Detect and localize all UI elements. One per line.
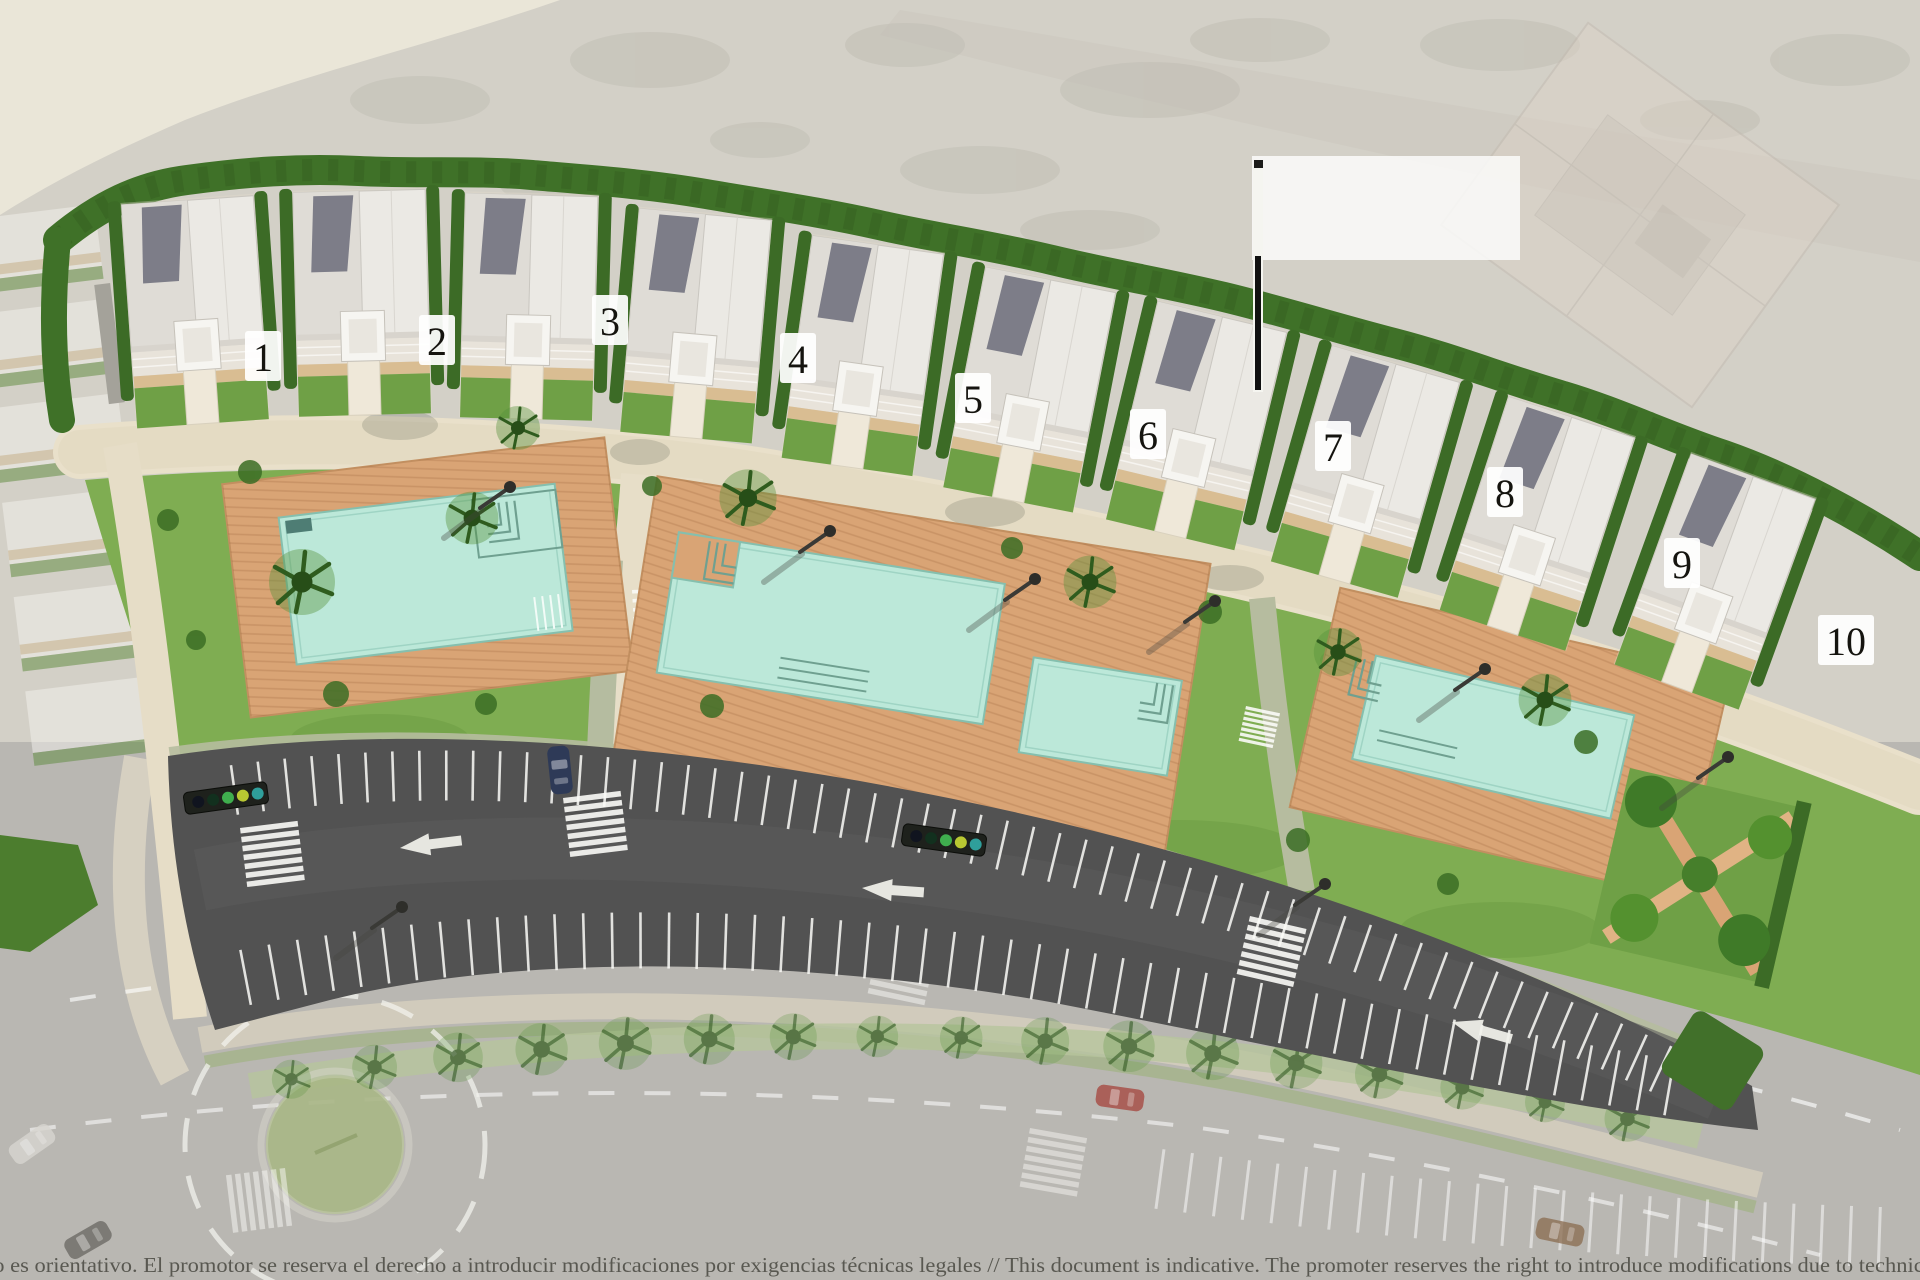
palm-tree-icon	[599, 1017, 652, 1070]
building-number-label: 4	[780, 333, 816, 383]
palm-tree-icon	[719, 469, 776, 526]
building-plot-2	[279, 185, 445, 417]
building-number-label: 10	[1818, 615, 1874, 665]
building-number-label: 7	[1315, 421, 1351, 471]
building-plot-3	[446, 189, 612, 421]
palm-tree-icon	[856, 1016, 898, 1058]
callout-box	[1252, 156, 1520, 260]
palm-tree-icon	[1064, 556, 1117, 609]
palm-tree-icon	[433, 1032, 483, 1082]
palm-tree-icon	[496, 406, 540, 450]
svg-text:7: 7	[1323, 425, 1343, 470]
palm-tree-icon	[515, 1023, 567, 1075]
palm-tree-icon	[269, 549, 335, 615]
palm-tree-icon	[272, 1060, 311, 1099]
building-number-label: 2	[419, 315, 455, 365]
svg-text:4: 4	[788, 337, 808, 382]
building-plot-4	[606, 203, 785, 444]
palm-tree-icon	[1314, 628, 1362, 676]
building-number-label: 5	[955, 373, 991, 423]
svg-text:8: 8	[1495, 471, 1515, 516]
svg-text:10: 10	[1826, 619, 1866, 664]
building-number-label: 3	[592, 295, 628, 345]
palm-tree-icon	[352, 1045, 397, 1090]
palm-tree-icon	[1021, 1017, 1069, 1065]
palm-tree-icon	[1519, 674, 1572, 727]
site-plan: 1 2 3 4 5 6 7 8 9 10 no es orientativo. …	[0, 0, 1920, 1280]
palm-tree-icon	[684, 1014, 735, 1065]
building-plot-1	[107, 191, 283, 430]
palm-tree-icon	[770, 1013, 817, 1060]
svg-text:5: 5	[963, 377, 983, 422]
svg-text:6: 6	[1138, 413, 1158, 458]
svg-text:1: 1	[253, 335, 273, 380]
building-number-label: 1	[245, 331, 281, 381]
palm-tree-icon	[940, 1016, 983, 1059]
palm-tree-icon	[1103, 1021, 1154, 1072]
building-number-label: 6	[1130, 409, 1166, 459]
building-number-label: 9	[1664, 538, 1700, 588]
disclaimer-text: no es orientativo. El promotor se reserv…	[0, 1253, 1920, 1277]
svg-text:2: 2	[427, 319, 447, 364]
site-plan-rendering: 1 2 3 4 5 6 7 8 9 10 no es orientativo. …	[0, 0, 1920, 1280]
svg-text:9: 9	[1672, 542, 1692, 587]
svg-text:3: 3	[600, 299, 620, 344]
building-number-label: 8	[1487, 467, 1523, 517]
